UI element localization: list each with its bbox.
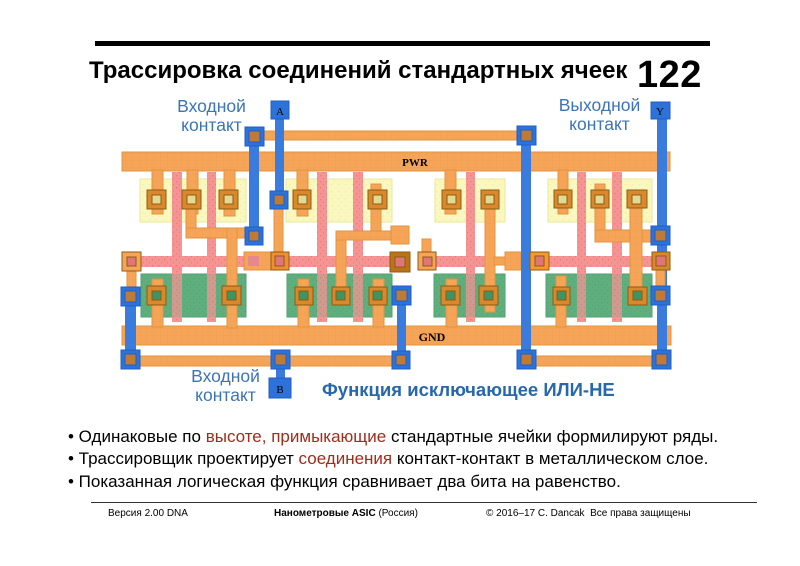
svg-text:Y: Y bbox=[656, 106, 664, 118]
svg-text:GND: GND bbox=[419, 330, 446, 344]
svg-text:A: A bbox=[276, 106, 284, 118]
svg-text:PWR: PWR bbox=[402, 157, 429, 169]
svg-text:B: B bbox=[276, 384, 283, 396]
